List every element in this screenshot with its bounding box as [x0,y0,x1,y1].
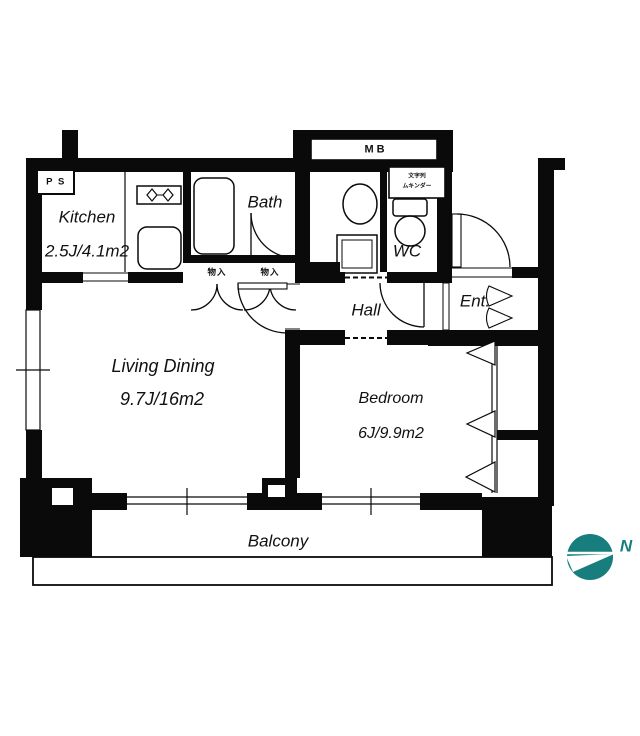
living-door-leaf [238,283,287,289]
wc-cabinet-text-2: ムキンダー [402,184,431,190]
washbasin-icon [343,184,377,224]
bath-label: Bath [248,194,283,211]
closet-folding-door [466,462,495,492]
washing-machine-icon [337,235,377,273]
living-door-arc [238,284,287,333]
front-door-arc [457,214,510,267]
floor-plan: Kitchen 2.5J/4.1m2 Bath WC Hall Ent. Liv… [0,0,640,736]
toilet-icon [393,199,427,216]
compass-icon [566,534,614,580]
storage-door-arc [191,284,217,310]
balcony-railing [33,557,552,585]
bedroom-size: 6J/9.9m2 [358,426,424,442]
floor-plan-drawing [0,0,640,736]
pipe-space-label: P S [46,177,66,187]
entrance-label: Ent. [460,293,490,310]
shoe-cabinet-door [487,286,513,306]
bathtub-icon [194,178,234,254]
meter-box-label: MB [364,145,387,156]
entrance-step [443,283,449,330]
storage-right-label: 物入 [260,268,279,277]
kitchen-label: Kitchen [59,209,116,226]
kitchen-sink-icon [138,227,181,269]
storage-left-label: 物入 [207,268,226,277]
walls [20,130,565,557]
wc-cabinet-text-1: 文字列 [408,174,426,180]
balcony-label: Balcony [248,533,308,550]
kitchen-size: 2.5J/4.1m2 [45,243,129,260]
front-door-leaf [452,214,461,267]
north-label: N [620,538,632,555]
wc-door-arc [380,283,424,327]
living-dining-size: 9.7J/16m2 [120,390,204,408]
bedroom-label: Bedroom [359,391,424,407]
living-dining-label: Living Dining [111,357,214,375]
hall-label: Hall [351,302,380,319]
wc-label: WC [393,243,421,260]
shoe-cabinet-door [487,308,513,328]
closet-folding-door [467,411,495,437]
bath-door [251,213,295,258]
